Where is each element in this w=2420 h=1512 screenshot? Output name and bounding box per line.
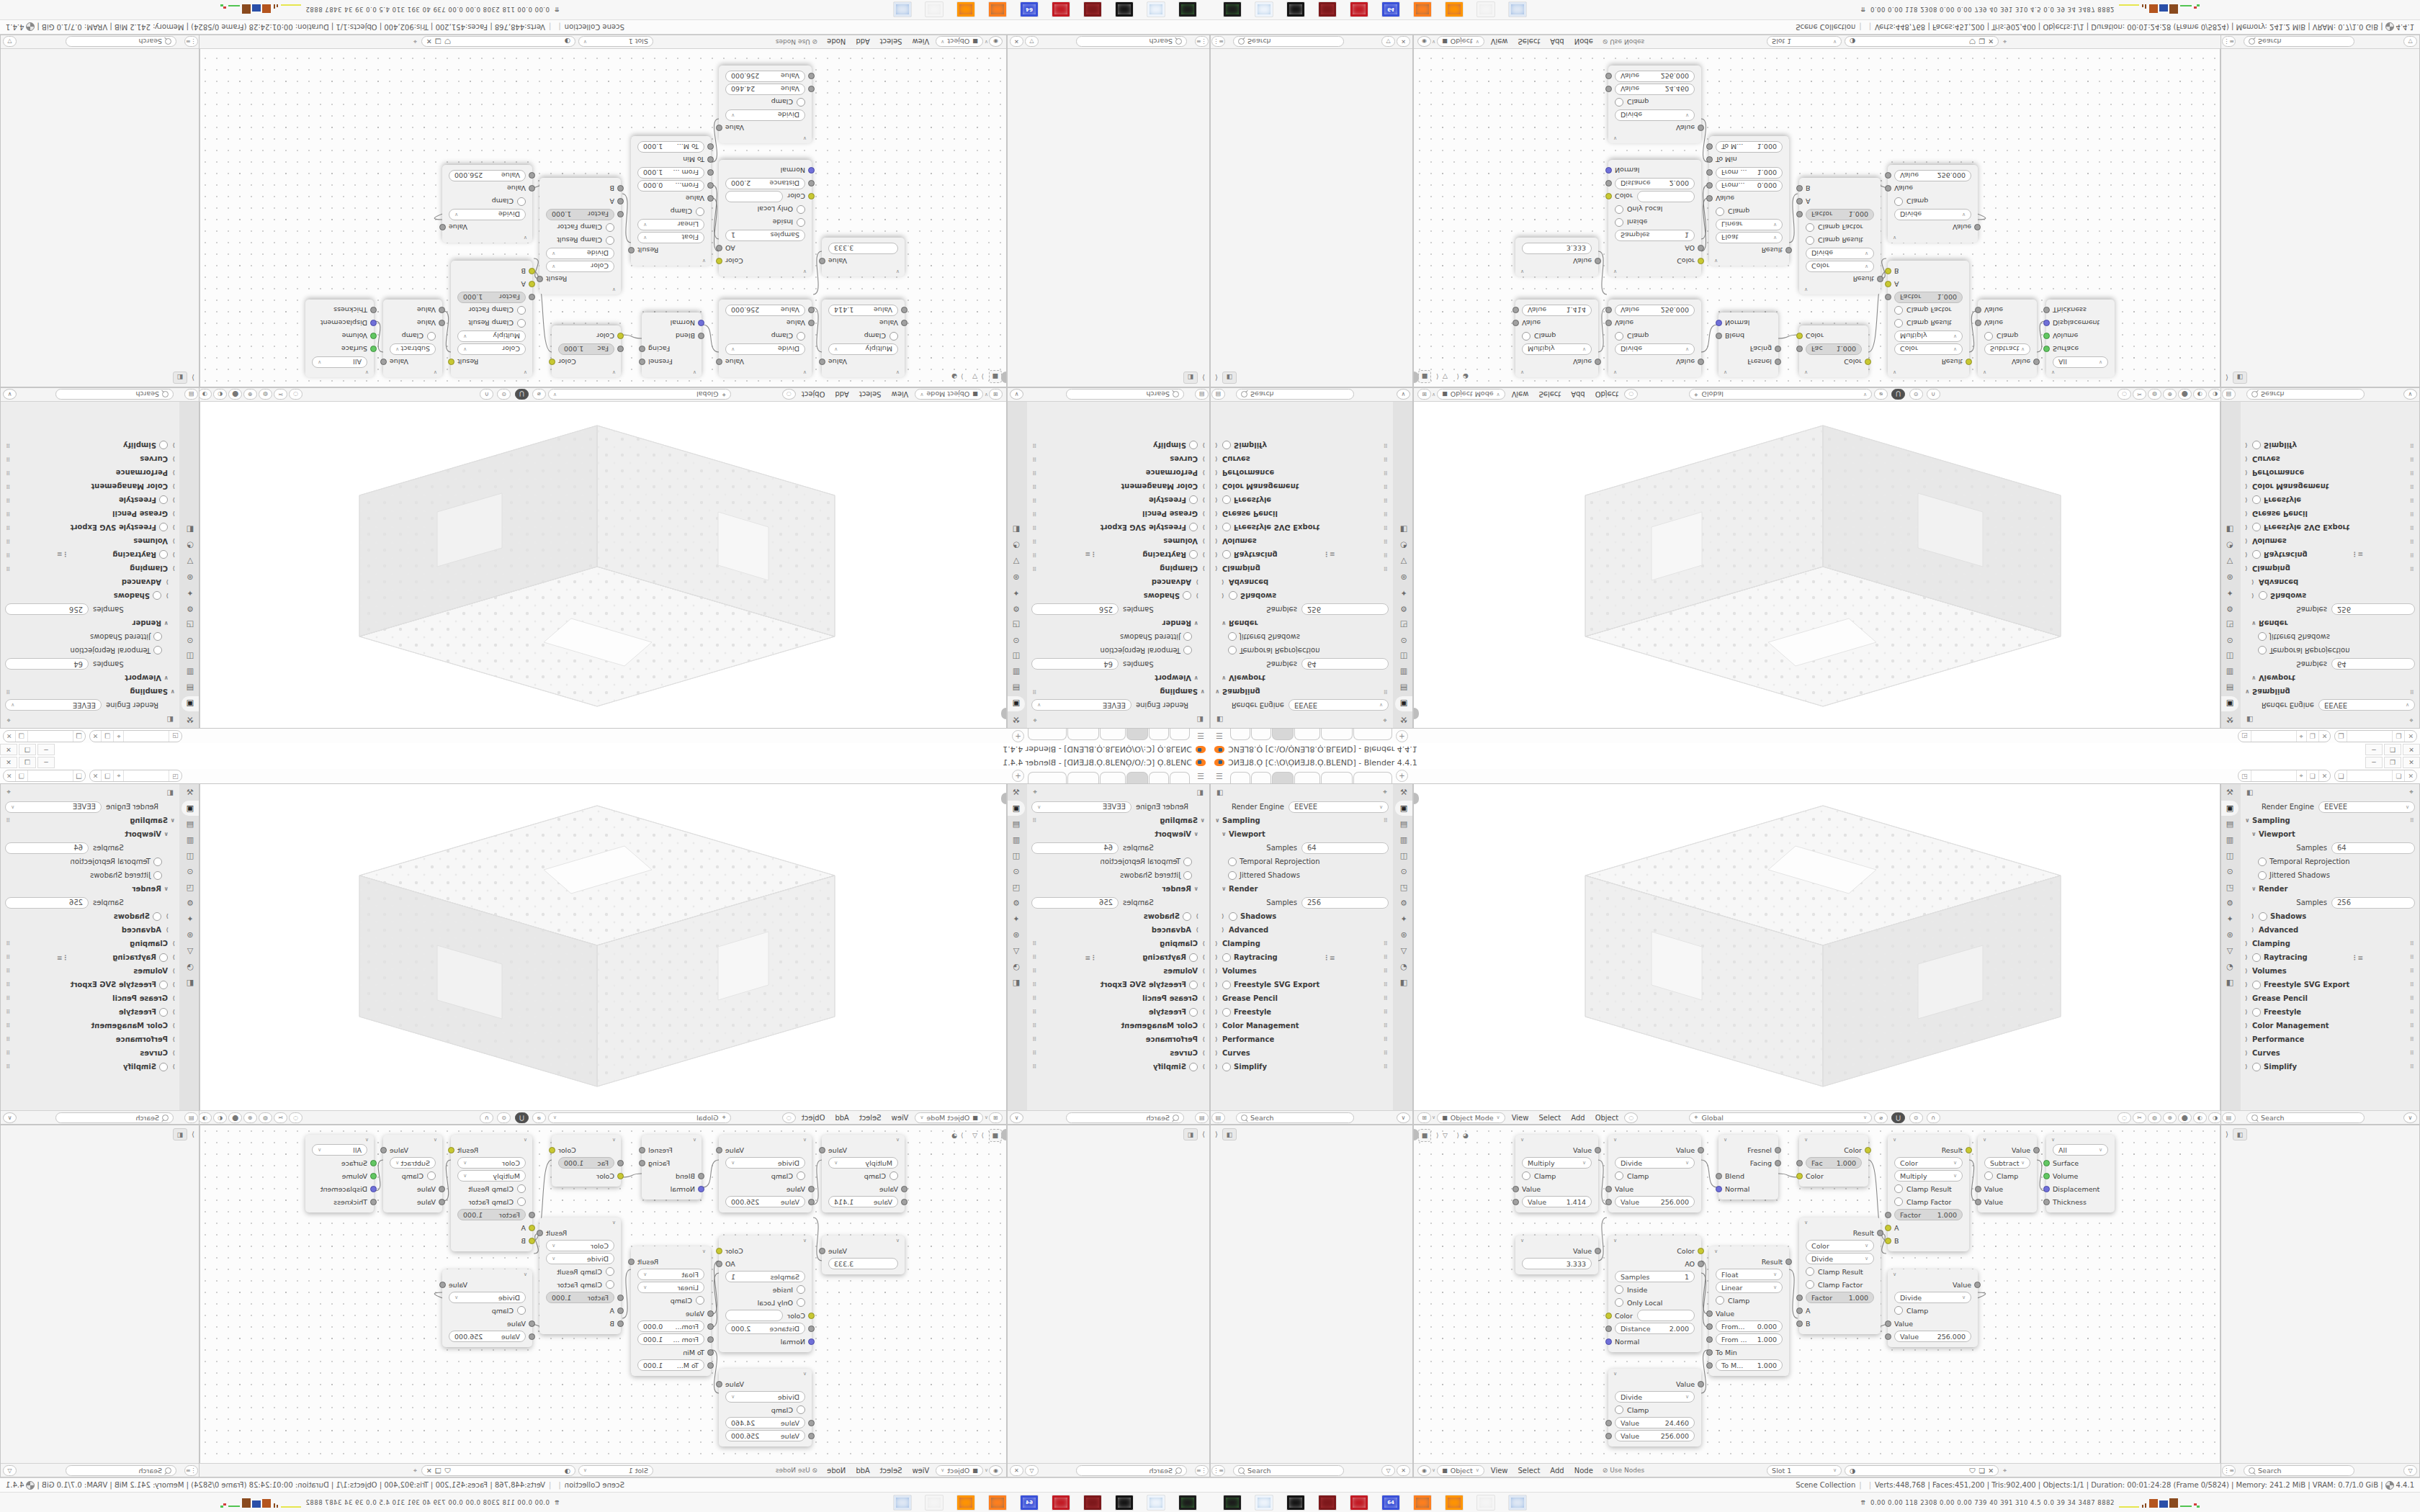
input-socket[interactable] (1885, 1333, 1891, 1340)
mode-options-icon[interactable]: ◌ (782, 1112, 796, 1123)
drag-grip-icon[interactable]: ⠿ (2410, 1050, 2415, 1056)
properties-tab-icon-4[interactable]: ◫ (2221, 848, 2238, 863)
input-socket[interactable] (698, 1173, 704, 1179)
menu-object[interactable]: Object (802, 391, 825, 399)
viewlayer-name-field[interactable] (2347, 731, 2393, 742)
properties-tab-icon-7[interactable]: ⚙ (1008, 601, 1025, 616)
input-socket[interactable] (1512, 1186, 1519, 1192)
shader-node-7[interactable]: ∨Value3.333 (822, 1236, 905, 1274)
prop-row-jittered-shadows[interactable]: Jittered Shadows (1, 630, 179, 644)
properties-tab-icon-4[interactable]: ◫ (1008, 649, 1025, 664)
taskbar-app-dark-app[interactable] (1286, 1495, 1305, 1511)
disclosure-triangle[interactable]: ⟩ (168, 524, 175, 531)
shader-node-9[interactable]: ∨ResultFloat∨Linear∨ClampValueFrom...0.0… (631, 136, 711, 266)
workspace-tab-5[interactable] (1321, 772, 1353, 783)
disclosure-triangle[interactable]: ∨ (2245, 688, 2252, 695)
use-nodes-checkbox[interactable]: ⊘ Use Nodes (1603, 1467, 1644, 1474)
prop-row-color-management[interactable]: ⟩Color Management⠿ (2241, 1019, 2419, 1032)
disclosure-triangle[interactable]: ⟩ (2245, 940, 2252, 947)
disclosure-triangle[interactable]: ⟩ (1215, 995, 1222, 1002)
taskbar-app-notepad-app[interactable] (1255, 1495, 1273, 1511)
shading-material-icon[interactable]: ◐ (213, 1112, 227, 1123)
input-socket[interactable] (1706, 1336, 1713, 1343)
checkbox[interactable] (159, 441, 168, 450)
use-nodes-checkbox[interactable]: ⊘ Use Nodes (776, 1467, 817, 1474)
value-field[interactable]: EEVEE∨ (2318, 700, 2415, 711)
prop-row-freestyle[interactable]: ⟩Freestyle⠿ (1027, 493, 1209, 507)
visibility-icon[interactable]: ◌ (289, 390, 302, 400)
expand-arrow-icon[interactable]: ⟩ (2226, 374, 2228, 382)
viewport-3d[interactable]: ⊞∨ ■Object Mode∨ View Select Add Object … (1413, 387, 2220, 729)
value-field[interactable]: EEVEE∨ (1289, 700, 1389, 711)
output-socket[interactable] (1698, 245, 1704, 251)
output-socket[interactable] (716, 1261, 722, 1267)
workspace-tab-6[interactable] (1353, 729, 1392, 740)
checkbox[interactable] (1222, 953, 1231, 962)
input-socket[interactable] (617, 198, 624, 204)
taskbar-app-device-app[interactable] (1223, 1495, 1242, 1511)
drag-grip-icon[interactable]: ⠿ (1031, 1009, 1036, 1015)
maximize-button[interactable]: ❐ (2384, 757, 2401, 768)
input-socket[interactable] (439, 1199, 445, 1205)
workspace-tab-5[interactable] (1067, 729, 1099, 740)
disclosure-triangle[interactable]: ⟩ (2245, 442, 2252, 449)
checkbox[interactable] (2258, 647, 2267, 655)
workspace-tab-6[interactable] (1353, 772, 1392, 783)
disclosure-triangle[interactable]: ⟩ (168, 940, 175, 947)
value-field[interactable]: 64 (1301, 842, 1389, 854)
shader-node-12[interactable]: ∨ValueDivide∨ClampValue24.460Value256.00… (719, 1369, 812, 1446)
properties-tab-icon-8[interactable]: ✦ (181, 585, 199, 600)
prop-row-jittered-shadows[interactable]: Jittered Shadows (1, 868, 179, 882)
drag-grip-icon[interactable]: ⠿ (2410, 510, 2415, 517)
drag-grip-icon[interactable]: ⠿ (5, 1036, 10, 1043)
properties-tab-icon-3[interactable]: ▥ (1395, 832, 1412, 847)
properties-tab-icon-1[interactable]: ▣ (2221, 801, 2238, 816)
node-value-field[interactable]: Distance2.000 (1615, 1323, 1695, 1334)
input-socket[interactable] (617, 185, 624, 192)
filter-close-icon[interactable]: ✕ (1010, 1465, 1023, 1476)
output-socket[interactable] (1865, 1147, 1871, 1153)
disclosure-triangle[interactable]: ⟩ (168, 469, 175, 476)
filter-close-icon[interactable]: ✕ (1397, 1465, 1410, 1476)
disclosure-triangle[interactable]: ⟩ (2245, 565, 2252, 572)
value-field[interactable]: 256 (1031, 604, 1119, 616)
checkbox[interactable] (1222, 523, 1231, 532)
display-mode-button[interactable]: ⋮≡ (1211, 1465, 1225, 1476)
properties-tab-icon-2[interactable]: ▤ (181, 816, 199, 832)
value-field[interactable]: 256 (5, 604, 89, 616)
expand-arrow-icon[interactable]: ⟩ (961, 1132, 964, 1139)
properties-tab-icon-0[interactable]: ⚒ (181, 712, 199, 727)
checkbox[interactable] (2252, 981, 2261, 989)
falloff-icon[interactable]: ∩ (1927, 1112, 1940, 1123)
prop-row-performance[interactable]: ⟩Performance⠿ (1, 1032, 179, 1046)
menu-node[interactable]: Node (827, 38, 846, 46)
output-socket[interactable] (716, 1248, 722, 1254)
node-dropdown[interactable]: Divide∨ (725, 1391, 805, 1403)
taskbar-app-floppy-64[interactable]: 64 (1020, 1, 1039, 17)
viewlayer-copy-icon[interactable]: ❏ (2393, 770, 2405, 781)
disclosure-triangle[interactable]: ⟩ (2245, 1050, 2252, 1056)
input-socket[interactable] (1706, 169, 1713, 176)
drag-grip-icon[interactable]: ⠿ (1384, 995, 1389, 1002)
input-socket[interactable] (370, 307, 377, 313)
disclosure-triangle[interactable]: ⟩ (1215, 565, 1222, 572)
node-value-field[interactable]: Value256.000 (1615, 1430, 1695, 1441)
disclosure-triangle[interactable]: ⟩ (1198, 483, 1205, 490)
prop-row-samples[interactable]: Samples256 (1211, 896, 1393, 909)
output-socket[interactable] (1698, 1248, 1704, 1254)
node-dropdown[interactable]: Divide∨ (546, 248, 614, 259)
minimize-button[interactable]: ─ (37, 757, 55, 768)
properties-tab-icon-7[interactable]: ⚙ (181, 601, 199, 616)
node-graph-canvas[interactable]: ■ ⟩ ▽ ⟩ ◕ ∨ValueMultiply∨ClampValueValue… (200, 48, 1006, 387)
prop-row-sampling[interactable]: ∨Sampling⠿ (2241, 685, 2419, 698)
prop-row-color-management[interactable]: ⟩Color Management⠿ (1027, 1019, 1209, 1032)
scene-pin-icon[interactable]: ⌖ (113, 731, 123, 742)
disclosure-triangle[interactable]: ⟩ (168, 1009, 175, 1015)
prop-row-raytracing[interactable]: ⟩Raytracing⋮≡⠿ (2241, 548, 2419, 562)
drag-grip-icon[interactable]: ⠿ (1384, 456, 1389, 462)
menu-node[interactable]: Node (1574, 38, 1593, 46)
display-mode-button[interactable]: ⋮≡ (1211, 37, 1225, 48)
input-socket[interactable] (370, 1186, 377, 1192)
shader-node-11[interactable]: ∨ValueDivide∨ClampValueValue256.000 (1888, 1269, 1978, 1347)
xray-icon[interactable]: ✂ (2133, 1112, 2146, 1123)
node-value-field[interactable]: Value24.460 (1615, 1417, 1695, 1428)
properties-tab-icon-5[interactable]: ⊙ (1008, 864, 1025, 879)
drag-grip-icon[interactable]: ⠿ (5, 483, 10, 490)
drag-grip-icon[interactable]: ⠿ (5, 469, 10, 476)
drag-grip-icon[interactable]: ⠿ (1384, 1036, 1389, 1043)
side-search-input[interactable]: Search (66, 1465, 176, 1476)
node-collapse-icon[interactable]: ∨ (719, 1137, 812, 1143)
display-mode-button[interactable]: ⋮≡ (1195, 37, 1209, 48)
value-field[interactable]: 256 (1301, 897, 1389, 909)
disclosure-triangle[interactable]: ⟩ (1198, 940, 1205, 947)
shader-node-4[interactable]: ∨ResultColor∨Multiply∨Clamp ResultClamp … (451, 261, 532, 377)
output-socket[interactable] (716, 1147, 722, 1153)
menu-hamburger-icon[interactable]: ☰ (1197, 772, 1204, 781)
input-socket[interactable] (1716, 320, 1722, 326)
taskbar-app-ghost-app[interactable] (925, 1495, 944, 1511)
prop-row-render-engine[interactable]: Render EngineEEVEE∨ (1211, 698, 1393, 712)
prop-row-viewport[interactable]: ∨Viewport (1, 827, 179, 841)
node-value-field[interactable]: Factor1.000 (1806, 1292, 1874, 1303)
drag-grip-icon[interactable]: ⠿ (5, 565, 10, 572)
filter-close-icon[interactable]: ✕ (1397, 37, 1410, 48)
value-field[interactable]: 64 (1301, 659, 1389, 670)
shading-material-icon[interactable]: ◐ (2193, 390, 2207, 400)
properties-tab-icon-1[interactable]: ▣ (1008, 801, 1025, 816)
checkbox[interactable] (1189, 523, 1198, 532)
disclosure-triangle[interactable]: ⟩ (2245, 968, 2252, 974)
node-collapse-icon[interactable]: ∨ (1515, 268, 1598, 274)
shader-type-dropdown[interactable]: ■Object∨ (936, 1465, 983, 1476)
editor-type-button[interactable]: ◉ (989, 37, 1003, 48)
disclosure-triangle[interactable]: ⟩ (1191, 913, 1198, 919)
input-socket[interactable] (1796, 1295, 1803, 1301)
workspace-tab-2[interactable] (1251, 772, 1271, 783)
drag-grip-icon[interactable]: ⠿ (2410, 552, 2415, 558)
shader-node-editor[interactable]: ■ ⟩ ▽ ⟩ ◕ ∨ValueMultiply∨ClampValueValue… (1413, 35, 2220, 387)
value-field[interactable]: 64 (5, 659, 89, 670)
prop-row-raytracing[interactable]: ⟩Raytracing⋮≡⠿ (1211, 548, 1393, 562)
properties-tab-icon-11[interactable]: ◔ (1008, 538, 1025, 553)
input-socket[interactable] (1605, 193, 1612, 199)
prop-row-raytracing[interactable]: ⟩Raytracing⋮≡⠿ (1, 950, 179, 964)
node-collapse-icon[interactable]: ∨ (442, 234, 532, 240)
input-socket[interactable] (808, 1199, 815, 1205)
pivot-icon[interactable]: ⌀ (1874, 390, 1888, 400)
node-dropdown[interactable]: Multiply∨ (1894, 330, 1963, 342)
funnel-icon[interactable]: ▽ (1439, 1129, 1452, 1142)
menu-add[interactable]: Add (1550, 1467, 1564, 1475)
disclosure-triangle[interactable]: ⟩ (168, 552, 175, 558)
output-socket[interactable] (1974, 1282, 1981, 1288)
node-dropdown[interactable]: Multiply∨ (1894, 1170, 1963, 1182)
drag-grip-icon[interactable]: ⠿ (2410, 817, 2415, 824)
prop-row-render-engine[interactable]: Render EngineEEVEE∨ (1211, 800, 1393, 814)
menu-node[interactable]: Node (827, 1467, 846, 1475)
drag-grip-icon[interactable]: ⠿ (2410, 995, 2415, 1002)
shader-node-2[interactable]: ∨FresnelFacingBlendNormal (1718, 1135, 1778, 1200)
disclosure-triangle[interactable]: ⟩ (1198, 442, 1205, 449)
checkbox[interactable] (1222, 1008, 1231, 1017)
input-socket[interactable] (370, 346, 377, 352)
prop-row-samples[interactable]: Samples64 (1027, 657, 1209, 671)
shading-wireframe-icon[interactable]: ⊕ (243, 1112, 257, 1123)
disclosure-triangle[interactable]: ∨ (2251, 886, 2259, 892)
snap-magnet-icon[interactable]: ⋃ (1891, 390, 1905, 400)
editor-type-button[interactable]: ▤ (184, 1112, 198, 1123)
prop-row-volumes[interactable]: ⟩Volumes⠿ (1, 534, 179, 548)
prop-row-volumes[interactable]: ⟩Volumes⠿ (1027, 534, 1209, 548)
node-value-field[interactable]: Factor1.000 (457, 1209, 526, 1220)
pinned-item-icon[interactable]: ◧ (2233, 1128, 2247, 1140)
disclosure-triangle[interactable]: ⟩ (2251, 927, 2259, 933)
viewlayer-selector[interactable]: ❑ ❏ ✕ (3, 770, 86, 782)
properties-tab-icon-11[interactable]: ◔ (181, 959, 199, 974)
node-value-field[interactable]: Value256.000 (725, 1430, 805, 1441)
properties-tab-icon-9[interactable]: ⊛ (181, 927, 199, 942)
prop-row-color-management[interactable]: ⟩Color Management⠿ (1211, 1019, 1393, 1032)
prop-row-advanced[interactable]: ⟩Advanced (1027, 575, 1209, 589)
drag-grip-icon[interactable]: ⠿ (2410, 968, 2415, 974)
prop-row-samples[interactable]: Samples64 (1, 841, 179, 855)
node-dropdown[interactable]: Subtract∨ (390, 1157, 436, 1169)
input-socket[interactable] (370, 1199, 377, 1205)
node-dropdown[interactable]: Float∨ (637, 232, 704, 243)
node-dropdown[interactable]: Divide∨ (1615, 343, 1695, 355)
node-dropdown[interactable]: Divide∨ (449, 209, 526, 220)
prop-row-render[interactable]: ∨Render (1, 882, 179, 896)
shader-node-3[interactable]: ∨ColorFac1.000Color (1799, 325, 1868, 377)
input-socket[interactable] (901, 1186, 907, 1192)
drag-grip-icon[interactable]: ⠿ (1031, 469, 1036, 476)
menu-select[interactable]: Select (1538, 1114, 1561, 1122)
disclosure-triangle[interactable]: ∨ (161, 620, 169, 626)
editor-type-button[interactable]: ▤ (1195, 390, 1209, 400)
scene-unlink-icon[interactable]: ✕ (90, 731, 102, 742)
checkbox[interactable] (153, 858, 162, 866)
prop-row-color-management[interactable]: ⟩Color Management⠿ (1, 1019, 179, 1032)
output-socket[interactable] (1698, 1147, 1704, 1153)
prop-row-color-management[interactable]: ⟩Color Management⠿ (1, 480, 179, 493)
expand-arrow-icon[interactable]: ⟩ (981, 373, 984, 380)
output-socket[interactable] (1966, 359, 1972, 365)
pin-icon[interactable]: ⌖ (1033, 788, 1037, 796)
properties-tab-icon-9[interactable]: ⊛ (1008, 570, 1025, 585)
expand-arrow-icon[interactable]: ⟩ (1436, 1132, 1439, 1139)
disclosure-triangle[interactable]: ⟩ (2245, 981, 2252, 988)
input-socket[interactable] (529, 185, 535, 192)
properties-tab-icon-12[interactable]: ◧ (1008, 975, 1025, 990)
menu-icon[interactable]: ⋮≡ (57, 552, 69, 559)
prop-row-advanced[interactable]: ⟩Advanced (1027, 923, 1209, 937)
properties-tab-icon-9[interactable]: ⊛ (2221, 927, 2238, 942)
prop-row-simplify[interactable]: ⟩Simplify⠿ (1027, 438, 1209, 452)
shading-solid-icon[interactable]: ⬤ (228, 1112, 242, 1123)
scene-unlink-icon[interactable]: ✕ (2319, 770, 2331, 781)
disclosure-triangle[interactable]: ⟩ (168, 565, 175, 572)
snap-magnet-icon[interactable]: ⋃ (515, 1112, 529, 1123)
prop-row-samples[interactable]: Samples64 (1027, 841, 1209, 855)
properties-tab-icon-2[interactable]: ▤ (1008, 816, 1025, 832)
output-socket[interactable] (716, 125, 722, 131)
input-socket[interactable] (617, 1295, 624, 1301)
checkbox[interactable] (2258, 871, 2267, 880)
shader-node-2[interactable]: ∨FresnelFacingBlendNormal (1718, 312, 1778, 377)
prop-row-samples[interactable]: Samples64 (2241, 657, 2419, 671)
proportional-icon[interactable]: ⊙ (1909, 1112, 1923, 1123)
shader-node-1[interactable]: ∨ValueDivide∨ClampValueValue256.000 (719, 1135, 812, 1212)
prop-row-temporal-reprojection[interactable]: Temporal Reprojection (1027, 855, 1209, 868)
node-dropdown[interactable]: Color∨ (1894, 343, 1963, 355)
drag-grip-icon[interactable]: ⠿ (1384, 981, 1389, 988)
expand-arrow-icon[interactable]: ⟩ (1436, 373, 1439, 380)
node-value-field[interactable]: Value256.000 (449, 1331, 526, 1342)
prop-row-curves[interactable]: ⟩Curves⠿ (1, 452, 179, 466)
node-value-field[interactable]: From...0.000 (637, 180, 704, 192)
menu-select[interactable]: Select (859, 391, 882, 399)
output-socket[interactable] (1785, 1259, 1792, 1265)
pivot-icon[interactable]: ⌀ (532, 1112, 546, 1123)
node-graph-canvas[interactable]: ■ ⟩ ▽ ⟩ ◕ ∨ValueMultiply∨ClampValueValue… (1414, 1125, 2220, 1464)
prop-row-viewport[interactable]: ∨Viewport (2241, 827, 2419, 841)
taskbar-app-blender-app[interactable] (988, 1, 1007, 17)
overlays-icon[interactable]: ◍ (259, 390, 272, 400)
shader-node-10[interactable]: ∨ResultColor∨Divide∨Clamp ResultClamp Fa… (1799, 178, 1881, 294)
drag-grip-icon[interactable]: ⠿ (1031, 565, 1036, 572)
prop-row-render[interactable]: ∨Render (1211, 616, 1393, 630)
properties-tab-icon-0[interactable]: ⚒ (2221, 785, 2238, 800)
display-mode-button[interactable]: ⋮≡ (2222, 1465, 2236, 1476)
prop-row-freestyle-svg-export[interactable]: ⟩Freestyle SVG Export⠿ (1, 521, 179, 534)
output-socket[interactable] (716, 258, 722, 264)
properties-options-button[interactable]: ∨ (1010, 1112, 1023, 1123)
prop-row-samples[interactable]: Samples64 (1, 657, 179, 671)
editor-type-button[interactable]: ◉ (1417, 37, 1431, 48)
node-collapse-icon[interactable]: ∨ (642, 369, 702, 375)
value-field[interactable]: 64 (1031, 659, 1119, 670)
scene-selector[interactable]: ◳ ⌖ ❏ ✕ (2238, 770, 2331, 782)
checkbox[interactable] (1189, 953, 1198, 962)
disclosure-triangle[interactable]: ⟩ (1198, 1050, 1205, 1056)
input-socket[interactable] (2043, 307, 2050, 313)
output-socket[interactable] (380, 359, 387, 365)
editor-type-button[interactable]: ⊞ (1417, 1112, 1431, 1123)
checkbox[interactable] (2259, 912, 2267, 921)
output-socket[interactable] (439, 224, 446, 230)
node-collapse-icon[interactable]: ∨ (1799, 1220, 1881, 1226)
node-dropdown[interactable]: Linear∨ (1716, 219, 1783, 230)
pinned-item-icon[interactable]: ◧ (2233, 372, 2247, 384)
node-value-field[interactable]: Fac1.000 (1806, 343, 1862, 355)
properties-tab-icon-5[interactable]: ⊙ (181, 633, 199, 648)
node-dropdown[interactable]: Divide∨ (1806, 1253, 1874, 1264)
viewport-sidebar-toggle[interactable] (1001, 793, 1006, 804)
disclosure-triangle[interactable]: ∨ (1191, 886, 1198, 892)
node-value-field[interactable]: Value256.000 (1615, 1196, 1695, 1207)
properties-tab-icon-6[interactable]: ◳ (1008, 880, 1025, 895)
material-id-selector[interactable]: ◑ 🛡 ❏ ✕ (421, 37, 575, 48)
editor-type-button[interactable]: ◉ (989, 1465, 1003, 1476)
drag-grip-icon[interactable]: ⠿ (1031, 817, 1036, 824)
disclosure-triangle[interactable]: ⟩ (2245, 1022, 2252, 1029)
taskbar-app-blender-app[interactable] (1413, 1495, 1432, 1511)
input-socket[interactable] (2043, 1199, 2050, 1205)
pinned-item-icon[interactable]: ◧ (173, 372, 187, 384)
scene-name-field[interactable] (2251, 731, 2297, 742)
properties-options-button[interactable]: ∨ (1010, 390, 1023, 400)
viewport-3d[interactable]: ⊞∨ ■Object Mode∨ View Select Add Object … (1413, 783, 2220, 1125)
prop-row-jittered-shadows[interactable]: Jittered Shadows (1027, 630, 1209, 644)
color-field[interactable] (725, 191, 783, 202)
output-socket[interactable] (448, 359, 454, 365)
properties-tab-icon-0[interactable]: ⚒ (1395, 712, 1412, 727)
properties-options-button[interactable]: ∨ (2403, 390, 2417, 400)
input-socket[interactable] (1796, 1173, 1803, 1179)
input-socket[interactable] (1512, 320, 1519, 326)
menu-hamburger-icon[interactable]: ☰ (1216, 731, 1223, 740)
shader-type-dropdown[interactable]: ■Object∨ (1437, 1465, 1484, 1476)
node-dropdown[interactable]: Divide∨ (1806, 248, 1874, 259)
checkbox[interactable] (2258, 858, 2267, 866)
disclosure-triangle[interactable]: ⟩ (161, 593, 169, 599)
menu-node[interactable]: Node (1574, 1467, 1593, 1475)
expand-arrow-icon[interactable]: ⟩ (192, 1130, 194, 1138)
input-socket[interactable] (439, 320, 445, 326)
disclosure-triangle[interactable]: ⟩ (168, 968, 175, 974)
prop-row-sampling[interactable]: ∨Sampling⠿ (2241, 814, 2419, 827)
properties-tab-icon-0[interactable]: ⚒ (181, 785, 199, 800)
properties-tab-icon-6[interactable]: ◳ (1395, 617, 1412, 632)
input-socket[interactable] (1605, 167, 1612, 174)
properties-tab-icon-5[interactable]: ⊙ (1395, 633, 1412, 648)
value-field[interactable]: EEVEE∨ (5, 700, 102, 711)
falloff-icon[interactable]: ∩ (480, 1112, 493, 1123)
drag-grip-icon[interactable]: ⠿ (1031, 981, 1036, 988)
checkbox[interactable] (159, 1063, 168, 1071)
checkbox[interactable] (2252, 441, 2261, 450)
pin-icon[interactable]: ⌖ (2409, 788, 2414, 796)
prop-row-performance[interactable]: ⟩Performance⠿ (1211, 466, 1393, 480)
disclosure-triangle[interactable]: ⟩ (2245, 497, 2252, 503)
prop-row-simplify[interactable]: ⟩Simplify⠿ (1211, 438, 1393, 452)
funnel-icon[interactable]: ▽ (968, 1129, 981, 1142)
